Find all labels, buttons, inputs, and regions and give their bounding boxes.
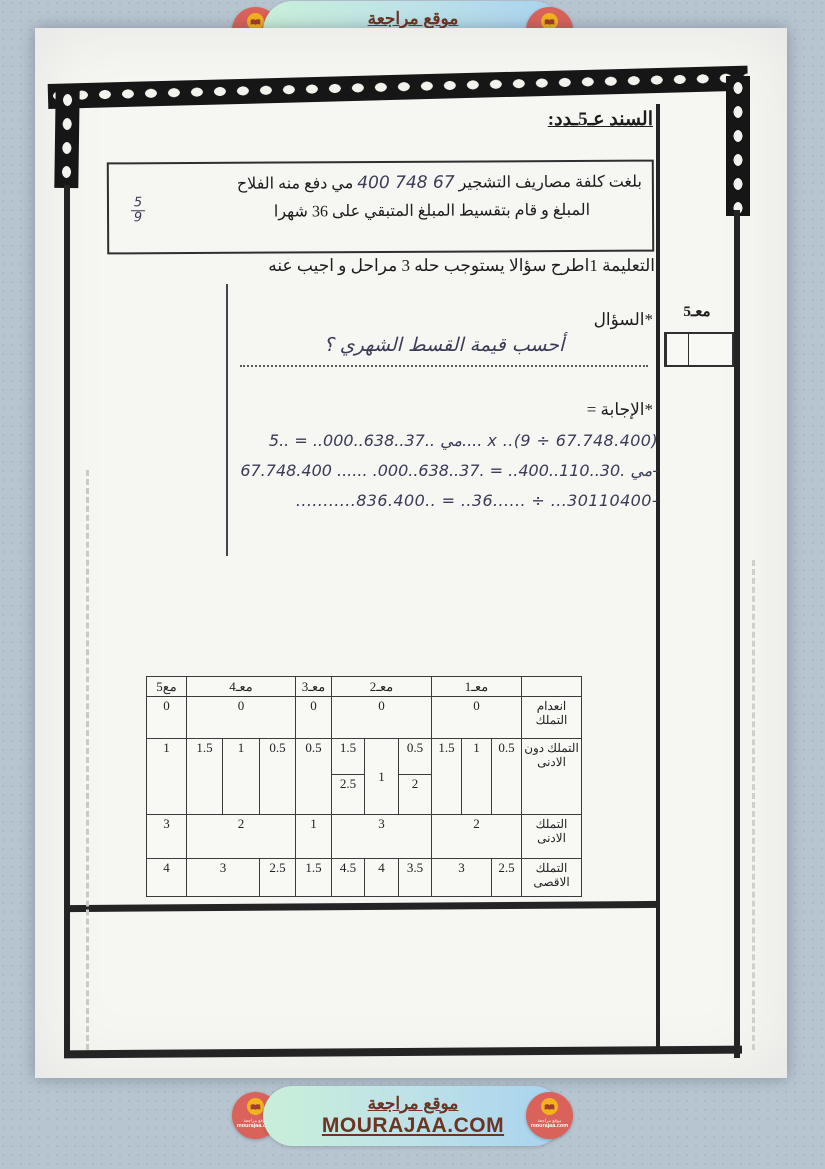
cell-r2-m4-b: 1 [223,739,260,815]
cell-r2-m2-bottom-left: 2.5 [332,775,365,815]
problem-statement-box: بلغت كلفة مصاريف التشجير 67 748 400 مي د… [107,160,654,255]
filmstrip-border-right [726,76,750,216]
cell-r3-m4: 2 [187,815,296,859]
cell-r1-m1: 0 [432,697,522,739]
footer-banner[interactable]: موقع مراجعة MOURAJAA.COM [263,1086,563,1146]
instruction-text: التعليمة 1اطرح سؤالا يستوجب حله 3 مراحل … [230,256,655,276]
cell-r3-m3: 1 [296,815,332,859]
cell-r1-m3: 0 [296,697,332,739]
cell-r4-m2-a: 3.5 [399,859,432,897]
cell-r2-m4-a: 0.5 [260,739,296,815]
cell-r3-m2: 3 [332,815,432,859]
row-label-r4: التملك الاقصى [522,859,582,897]
score-cell [688,334,710,365]
handwritten-answer-block: مي ..37..638..000.. = ..5.... x ..(9 ÷ 6… [230,431,658,521]
question-label: *السؤال [460,310,653,330]
cell-r2-m2-top-right: 0.5 [399,739,432,775]
badge-domain-label: mourajaa.com [531,1123,568,1129]
cell-r2-m1-a: 0.5 [492,739,522,815]
fraction-denominator: 9 [134,210,142,225]
answer-step-2: مي .30..110..400.. = .37..638..000. ....… [230,461,658,491]
score-label: معـ5 [662,302,732,321]
cell-r2-m3: 0.5 [296,739,332,815]
open-book-icon [541,1098,558,1115]
cell-r4-m1-a: 2.5 [492,859,522,897]
fraction-numerator: 5 [131,196,145,211]
col-header-m4: معـ4 [187,677,296,697]
cell-r4-m5: 4 [147,859,187,897]
col-header-m3: معـ3 [296,677,332,697]
cell-r2-m4-c: 1.5 [187,739,223,815]
cell-r4-m2-c: 4.5 [332,859,365,897]
binding-marks-left [86,470,89,1050]
cell-r3-m1: 2 [432,815,522,859]
cell-r2-m1-b: 1 [462,739,492,815]
answer-step-1: مي ..37..638..000.. = ..5.... x ..(9 ÷ 6… [230,431,658,461]
cell-r4-m4-b: 3 [187,859,260,897]
cell-r3-m5: 3 [147,815,187,859]
handwritten-amount: 67 748 400 [357,173,454,194]
col-header-m5: مع5 [147,677,187,697]
score-cell [711,334,732,365]
answer-label: *الإجابة = [460,400,653,420]
problem-line1-suffix: مي دفع منه الفلاح [237,175,354,193]
cell-r2-m1-c: 1.5 [432,739,462,815]
banner-arabic-title: موقع مراجعة [368,9,459,29]
table-row: التملك الادنى 2 3 1 2 3 [147,815,582,859]
answer-area-guide-line [226,284,228,556]
cell-r4-m2-b: 4 [365,859,399,897]
col-header-m1: معـ1 [432,677,522,697]
answer-step-3: ...........836.400.. = ..36...... ÷ ...3… [230,491,658,521]
cell-r1-m5: 0 [147,697,187,739]
row-label-r1: انعدام التملك [522,697,582,739]
cell-r2-m5: 1 [147,739,187,815]
exercise-title: السند عـ5ـدد: [480,108,653,131]
cell-r4-m3: 1.5 [296,859,332,897]
handwritten-question: أحسب قيمة القسط الشهري ؟ [240,334,648,367]
table-row: التملك الاقصى 2.5 3 3.5 4 4.5 1.5 2.5 3 … [147,859,582,897]
table-row: التملك دون الادنى 0.5 1 1.5 0.5 1 1.5 0.… [147,739,582,775]
corner-cell [522,677,582,697]
frame-left-line [64,185,70,1058]
cell-r4-m1-b: 3 [432,859,492,897]
margin-divider-line [656,104,660,1052]
cell-r2-m2-middle: 1 [365,739,399,815]
cell-r1-m4: 0 [187,697,296,739]
banner-arabic-title: موقع مراجعة [368,1094,459,1114]
table-header-row: معـ1 معـ2 معـ3 معـ4 مع5 [147,677,582,697]
open-book-icon [247,1098,264,1115]
cell-r2-m2-bottom-right: 2 [399,775,432,815]
site-logo-badge: موقع مراجعة mourajaa.com [526,1092,573,1139]
handwritten-fraction: 5 9 [129,196,147,224]
problem-line1: بلغت كلفة مصاريف التشجير 67 748 400 مي د… [109,162,652,198]
score-grid [664,332,734,367]
grading-rubric-table: معـ1 معـ2 معـ3 معـ4 مع5 انعدام التملك 0 … [146,676,582,897]
filmstrip-border-left [54,88,79,188]
table-row: انعدام التملك 0 0 0 0 0 [147,697,582,739]
score-cell [666,334,688,365]
problem-line1-prefix: بلغت كلفة مصاريف التشجير [459,174,642,192]
cell-r2-m2-top-left: 1.5 [332,739,365,775]
frame-right-line [734,210,740,1058]
banner-domain-link[interactable]: MOURAJAA.COM [322,1114,504,1138]
row-label-r3: التملك الادنى [522,815,582,859]
cell-r4-m4-a: 2.5 [260,859,296,897]
binding-marks-right [752,560,755,1050]
col-header-m2: معـ2 [332,677,432,697]
problem-line2: المبلغ و قام بتقسيط المبلغ المتبقي على 3… [109,195,652,226]
page: { "banner": { "title_ar": "موقع مراجعة",… [0,0,825,1169]
cell-r1-m2: 0 [332,697,432,739]
row-label-r2: التملك دون الادنى [522,739,582,815]
